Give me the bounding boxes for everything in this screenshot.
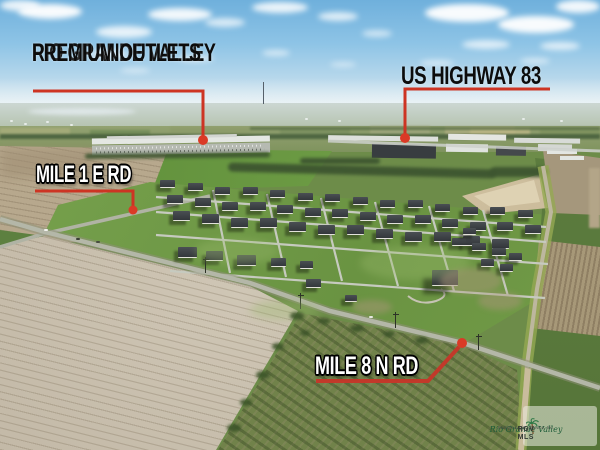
mile1-target-dot	[129, 206, 138, 215]
mls-watermark: Rio Grande Valley Multiple Listing Servi…	[523, 406, 597, 446]
mile8-target-dot	[457, 338, 467, 348]
outlets-target-dot	[198, 135, 208, 145]
outlets-leader-line	[33, 91, 203, 136]
watermark-abbr: RGV MLS	[518, 426, 535, 441]
highway-target-dot	[400, 133, 410, 143]
aerial-photo: RIO GRANDE VALLEY PREMIUM OUTLETS US HIG…	[0, 0, 600, 450]
mile1-leader-line	[35, 191, 133, 206]
outlets-label-line2: PREMIUM OUTLETS	[32, 42, 201, 65]
highway-leader-line	[405, 89, 550, 134]
